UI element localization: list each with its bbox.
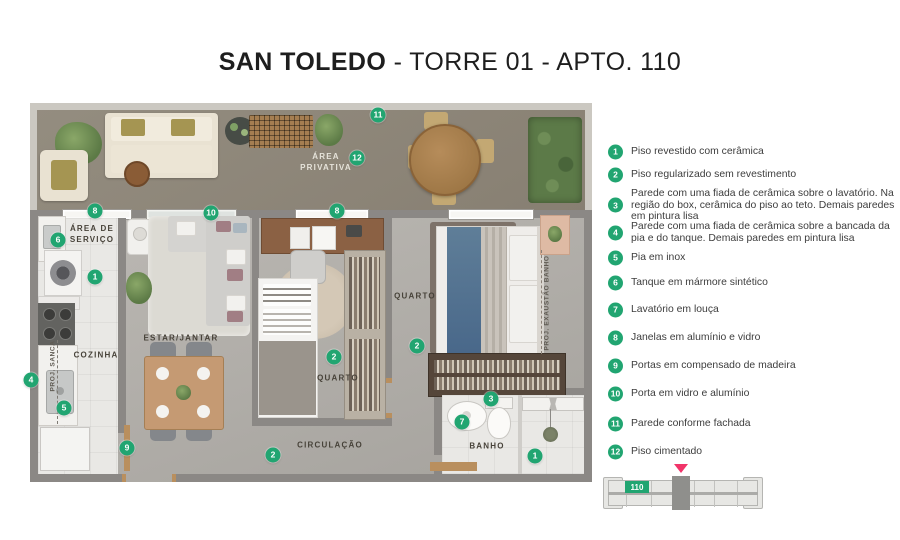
bedroom1-open-closet — [344, 250, 386, 420]
page-title: SAN TOLEDO - TORRE 01 - APTO. 110 — [0, 48, 900, 77]
living-plant — [126, 272, 152, 304]
plate — [197, 405, 210, 418]
striped-pillow — [263, 284, 311, 306]
bedroom2-window — [448, 209, 534, 220]
kitchen-living-wall — [118, 218, 126, 433]
legend-text: Pia em inox — [631, 252, 896, 264]
toilet-bowl — [487, 407, 511, 439]
terrace-right-wall — [585, 103, 592, 210]
marker-2-quarto2: 2 — [410, 339, 425, 354]
entry-door-jamb — [122, 474, 126, 482]
terrace-wood-trellis — [249, 115, 313, 148]
label-banho: BANHO — [469, 441, 504, 452]
legend-badge: 10 — [608, 386, 623, 401]
sofa-pillow — [226, 295, 246, 311]
marker-2-quarto1: 2 — [327, 350, 342, 365]
legend-item: 2Piso regularizado sem revestimento — [608, 169, 896, 181]
marker-8-quarto: 8 — [330, 204, 345, 219]
label-quarto-2: QUARTO — [394, 291, 436, 302]
kitchen-counter — [38, 345, 78, 426]
potted-plant — [230, 123, 238, 131]
armchair-cushion — [51, 160, 77, 190]
legend-text: Parede com uma fiada de cerâmica sobre a… — [631, 221, 896, 244]
marker-1-servico: 1 — [88, 270, 103, 285]
desk-papers — [290, 227, 310, 249]
terrace-armchair — [40, 150, 88, 201]
south-wall-right — [176, 474, 592, 482]
shower-arm — [550, 409, 551, 429]
label-estar-jantar: ESTAR/JANTAR — [144, 333, 219, 344]
plate — [156, 405, 169, 418]
hanging-clothes — [434, 360, 560, 373]
washing-machine — [44, 250, 82, 296]
label-cozinha: COZINHA — [74, 350, 119, 361]
plate — [197, 367, 210, 380]
bedroom1-single-bed — [258, 278, 318, 418]
legend-badge: 6 — [608, 275, 623, 290]
marker-11: 11 — [371, 108, 386, 123]
shower-head — [543, 427, 558, 442]
desk-object — [346, 225, 362, 237]
striped-pillow — [263, 309, 311, 335]
bedroom1-desk — [261, 218, 384, 254]
dining-table — [144, 356, 224, 430]
legend-item: 12Piso cimentado — [608, 446, 896, 458]
bathroom-door — [430, 462, 477, 471]
marker-5: 5 — [57, 401, 72, 416]
plate — [156, 367, 169, 380]
location-pointer-icon — [674, 464, 688, 473]
legend-item: 10Porta em vidro e alumínio — [608, 388, 896, 400]
bedroom2-double-bed — [436, 226, 544, 354]
burner — [43, 327, 56, 340]
marker-7: 7 — [455, 415, 470, 430]
legend-text: Porta em vidro e alumínio — [631, 388, 896, 400]
hanging-clothes — [434, 377, 560, 390]
marker-12: 12 — [350, 151, 365, 166]
marker-2-circulacao: 2 — [266, 448, 281, 463]
bed-blanket — [259, 341, 316, 415]
bed-blue-runner — [447, 227, 481, 353]
bed-pillow — [509, 285, 539, 343]
label-proj-sanca: PROJ. SANCA — [50, 340, 57, 391]
label-area-servico: ÁREA DE SERVIÇO — [70, 223, 114, 245]
terrace-top-wall — [30, 103, 592, 110]
nightstand-plant — [548, 226, 562, 242]
bathroom-west-wall — [434, 395, 442, 455]
south-wall-left — [30, 474, 122, 482]
legend-badge: 11 — [608, 416, 623, 431]
sofa-pillow-mauve — [216, 221, 231, 232]
label-circulacao: CIRCULAÇÃO — [297, 440, 363, 451]
console-decor — [133, 227, 147, 241]
terrace-dining-table — [409, 124, 481, 196]
washer-drum — [50, 260, 76, 286]
floor-plan: ÁREA PRIVATIVA ÁREA DE SERVIÇO COZINHA E… — [30, 103, 592, 482]
legend-item: 1Piso revestido com cerâmica — [608, 146, 896, 158]
legend-text: Tanque em mármore sintético — [631, 277, 896, 289]
label-area-privativa: ÁREA PRIVATIVA — [300, 151, 352, 173]
potted-plant — [241, 129, 248, 136]
legend-badge: 4 — [608, 225, 623, 240]
legend-text: Parede conforme fachada — [631, 418, 896, 430]
marker-8-servico: 8 — [88, 204, 103, 219]
stove — [38, 303, 75, 345]
fridge-space — [40, 427, 90, 471]
legend-item: 6Tanque em mármore sintético — [608, 277, 896, 289]
legend-text: Lavatório em louça — [631, 304, 896, 316]
highlighted-unit-110: 110 — [625, 481, 649, 493]
legend-badge: 12 — [608, 444, 623, 459]
east-wall — [584, 210, 592, 482]
legend-item: 3Parede com uma fiada de cerâmica sobre … — [608, 188, 896, 223]
bedroom2-wardrobe — [428, 353, 566, 397]
terrace-pouf — [124, 161, 150, 187]
legend-badge: 3 — [608, 198, 623, 213]
legend-item: 9Portas em compensado de madeira — [608, 360, 896, 372]
marker-9: 9 — [120, 441, 135, 456]
table-centerpiece — [176, 385, 191, 400]
building-core — [672, 476, 690, 510]
burner — [59, 308, 72, 321]
shower-glass-door — [522, 397, 584, 411]
legend-item: 8Janelas em alumínio e vidro — [608, 332, 896, 344]
legend-item: 5Pia em inox — [608, 252, 896, 264]
label-proj-exaustao: PROJ. EXAUSTÃO BANHO — [544, 255, 551, 350]
legend-text: Piso revestido com cerâmica — [631, 146, 896, 158]
bed-pillow — [509, 235, 539, 281]
entry-door-jamb — [172, 474, 176, 482]
sofa-pillow-mauve — [227, 269, 243, 281]
marker-1-banho: 1 — [528, 449, 543, 464]
legend-badge: 1 — [608, 144, 623, 159]
exhaust-projection-line — [541, 250, 542, 354]
legend-text: Janelas em alumínio e vidro — [631, 332, 896, 344]
terrace-plant — [315, 114, 343, 146]
legend-text: Parede com uma fiada de cerâmica sobre o… — [631, 188, 896, 223]
title-suffix: - TORRE 01 - APTO. 110 — [386, 48, 681, 76]
legend-text: Piso cimentado — [631, 446, 896, 458]
building-key-plan: 110 — [600, 462, 770, 520]
sofa-pillow-blue — [233, 223, 247, 233]
sofa-pillow — [226, 249, 246, 265]
legend-item: 7Lavatório em louça — [608, 304, 896, 316]
legend-text: Piso regularizado sem revestimento — [631, 169, 896, 181]
bed-duvet-folds — [481, 227, 507, 353]
marker-6: 6 — [51, 233, 66, 248]
legend-badge: 8 — [608, 330, 623, 345]
marker-3: 3 — [484, 392, 499, 407]
terrace-left-wall — [30, 103, 37, 210]
sofa-pillow — [176, 221, 196, 236]
sofa-pillow-olive — [171, 119, 195, 136]
burner — [43, 308, 56, 321]
desk-papers — [312, 226, 336, 250]
bedroom2-nightstand — [540, 215, 570, 255]
legend-badge: 7 — [608, 302, 623, 317]
project-name: SAN TOLEDO — [219, 48, 386, 76]
hanging-clothes — [349, 257, 380, 329]
burner — [59, 327, 72, 340]
legend-item: 11Parede conforme fachada — [608, 418, 896, 430]
page: SAN TOLEDO - TORRE 01 - APTO. 110 — [0, 0, 900, 540]
terrace-hedge — [528, 117, 582, 203]
sofa-pillow-olive — [121, 119, 145, 136]
legend-badge: 9 — [608, 358, 623, 373]
terrace-sofa — [105, 113, 218, 178]
legend-item: 4Parede com uma fiada de cerâmica sobre … — [608, 221, 896, 244]
west-wall — [30, 210, 38, 482]
legend-badge: 2 — [608, 167, 623, 182]
legend-badge: 5 — [608, 250, 623, 265]
label-quarto-1: QUARTO — [317, 373, 359, 384]
marker-4: 4 — [24, 373, 39, 388]
sofa-pillow-mauve — [227, 311, 243, 322]
legend-text: Portas em compensado de madeira — [631, 360, 896, 372]
marker-10: 10 — [204, 206, 219, 221]
